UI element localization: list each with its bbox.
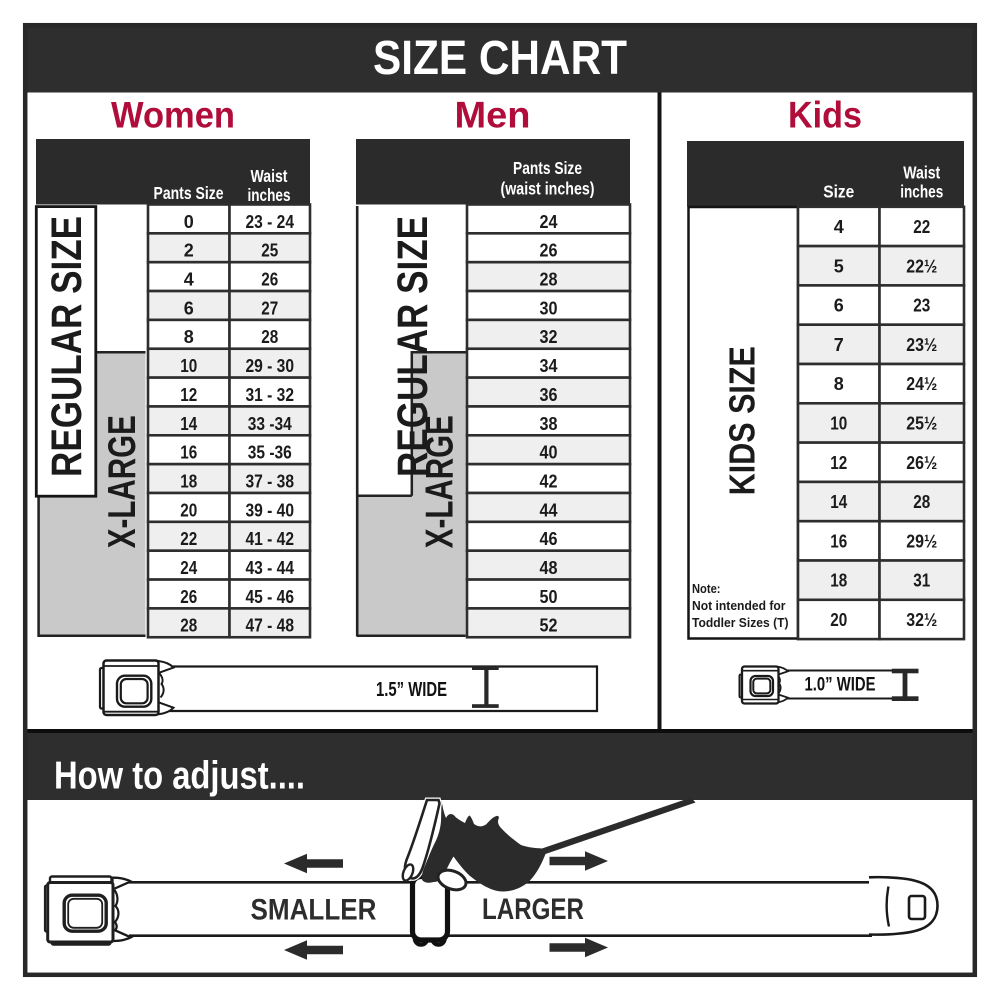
svg-text:28: 28 [540, 270, 558, 290]
svg-text:28: 28 [180, 616, 197, 636]
svg-text:31: 31 [913, 571, 930, 591]
svg-text:SIZE CHART: SIZE CHART [373, 32, 627, 85]
svg-text:12: 12 [180, 385, 197, 405]
svg-text:16: 16 [830, 531, 847, 551]
svg-text:Waist: Waist [903, 163, 940, 183]
svg-text:(waist inches): (waist inches) [501, 179, 595, 199]
svg-text:1.5” WIDE: 1.5” WIDE [376, 679, 447, 701]
svg-text:0: 0 [184, 212, 194, 232]
svg-text:2: 2 [184, 241, 194, 261]
svg-text:28: 28 [913, 492, 930, 512]
svg-text:39 - 40: 39 - 40 [246, 500, 295, 520]
svg-text:30: 30 [540, 298, 558, 318]
svg-text:14: 14 [180, 414, 197, 434]
svg-text:28: 28 [261, 327, 278, 347]
svg-text:23: 23 [913, 296, 930, 316]
svg-text:Toddler Sizes (T): Toddler Sizes (T) [692, 615, 789, 630]
svg-text:26: 26 [540, 241, 558, 261]
svg-text:22½: 22½ [906, 256, 937, 276]
svg-text:1.0” WIDE: 1.0” WIDE [805, 675, 876, 696]
svg-text:14: 14 [830, 492, 847, 512]
svg-text:20: 20 [180, 500, 197, 520]
svg-text:5: 5 [834, 256, 844, 276]
svg-text:8: 8 [184, 327, 194, 347]
svg-text:45 - 46: 45 - 46 [246, 587, 295, 607]
svg-text:29½: 29½ [906, 531, 937, 551]
svg-text:REGULAR SIZE: REGULAR SIZE [389, 216, 437, 477]
svg-text:Kids: Kids [788, 95, 862, 136]
svg-text:50: 50 [540, 587, 558, 607]
svg-text:25: 25 [261, 241, 278, 261]
svg-text:25½: 25½ [906, 414, 937, 434]
svg-text:12: 12 [830, 453, 847, 473]
svg-text:20: 20 [830, 610, 847, 630]
svg-text:Not intended for: Not intended for [692, 598, 786, 613]
svg-text:Size: Size [823, 182, 854, 202]
svg-text:10: 10 [830, 414, 847, 434]
svg-text:22: 22 [180, 529, 197, 549]
svg-text:Waist: Waist [251, 166, 288, 186]
svg-text:18: 18 [180, 471, 197, 491]
svg-text:4: 4 [834, 217, 844, 237]
svg-text:52: 52 [540, 616, 558, 636]
svg-text:24½: 24½ [906, 374, 937, 394]
svg-text:43 - 44: 43 - 44 [246, 558, 295, 578]
svg-text:inches: inches [900, 182, 943, 202]
svg-text:16: 16 [180, 443, 197, 463]
svg-text:inches: inches [248, 185, 291, 205]
svg-text:40: 40 [540, 443, 558, 463]
svg-text:6: 6 [834, 296, 844, 316]
svg-text:KIDS SIZE: KIDS SIZE [721, 346, 762, 495]
svg-text:38: 38 [540, 414, 558, 434]
svg-text:41 - 42: 41 - 42 [246, 529, 295, 549]
svg-text:8: 8 [834, 374, 844, 394]
svg-text:47 - 48: 47 - 48 [246, 616, 295, 636]
svg-text:27: 27 [261, 298, 278, 318]
svg-text:Pants Size: Pants Size [154, 183, 224, 203]
svg-text:26: 26 [261, 270, 278, 290]
svg-text:44: 44 [540, 500, 558, 520]
svg-text:29 - 30: 29 - 30 [246, 356, 295, 376]
svg-text:SMALLER: SMALLER [251, 894, 377, 927]
svg-text:23½: 23½ [906, 335, 937, 355]
svg-text:Men: Men [455, 95, 531, 136]
svg-text:10: 10 [180, 356, 197, 376]
svg-text:33 -34: 33 -34 [248, 414, 292, 434]
svg-text:26½: 26½ [906, 453, 937, 473]
svg-text:32½: 32½ [906, 610, 937, 630]
svg-text:37 - 38: 37 - 38 [246, 471, 295, 491]
svg-text:7: 7 [834, 335, 844, 355]
svg-text:18: 18 [830, 571, 847, 591]
svg-text:23 - 24: 23 - 24 [246, 212, 295, 232]
svg-text:32: 32 [540, 327, 558, 347]
svg-text:How to adjust....: How to adjust.... [54, 755, 305, 798]
svg-text:Note:: Note: [692, 581, 721, 596]
svg-text:48: 48 [540, 558, 558, 578]
svg-text:34: 34 [540, 356, 558, 376]
svg-text:31 - 32: 31 - 32 [246, 385, 295, 405]
svg-text:46: 46 [540, 529, 558, 549]
svg-text:REGULAR SIZE: REGULAR SIZE [43, 216, 91, 477]
svg-text:Women: Women [111, 95, 235, 136]
svg-text:42: 42 [540, 471, 558, 491]
svg-text:24: 24 [180, 558, 197, 578]
svg-text:4: 4 [184, 270, 194, 290]
svg-text:6: 6 [184, 298, 194, 318]
svg-text:35 -36: 35 -36 [248, 443, 292, 463]
svg-text:Pants Size: Pants Size [513, 158, 582, 178]
svg-text:26: 26 [180, 587, 197, 607]
svg-text:24: 24 [540, 212, 558, 232]
svg-text:36: 36 [540, 385, 558, 405]
svg-text:LARGER: LARGER [482, 893, 584, 926]
svg-text:X-LARGE: X-LARGE [101, 415, 144, 548]
svg-text:22: 22 [913, 217, 930, 237]
